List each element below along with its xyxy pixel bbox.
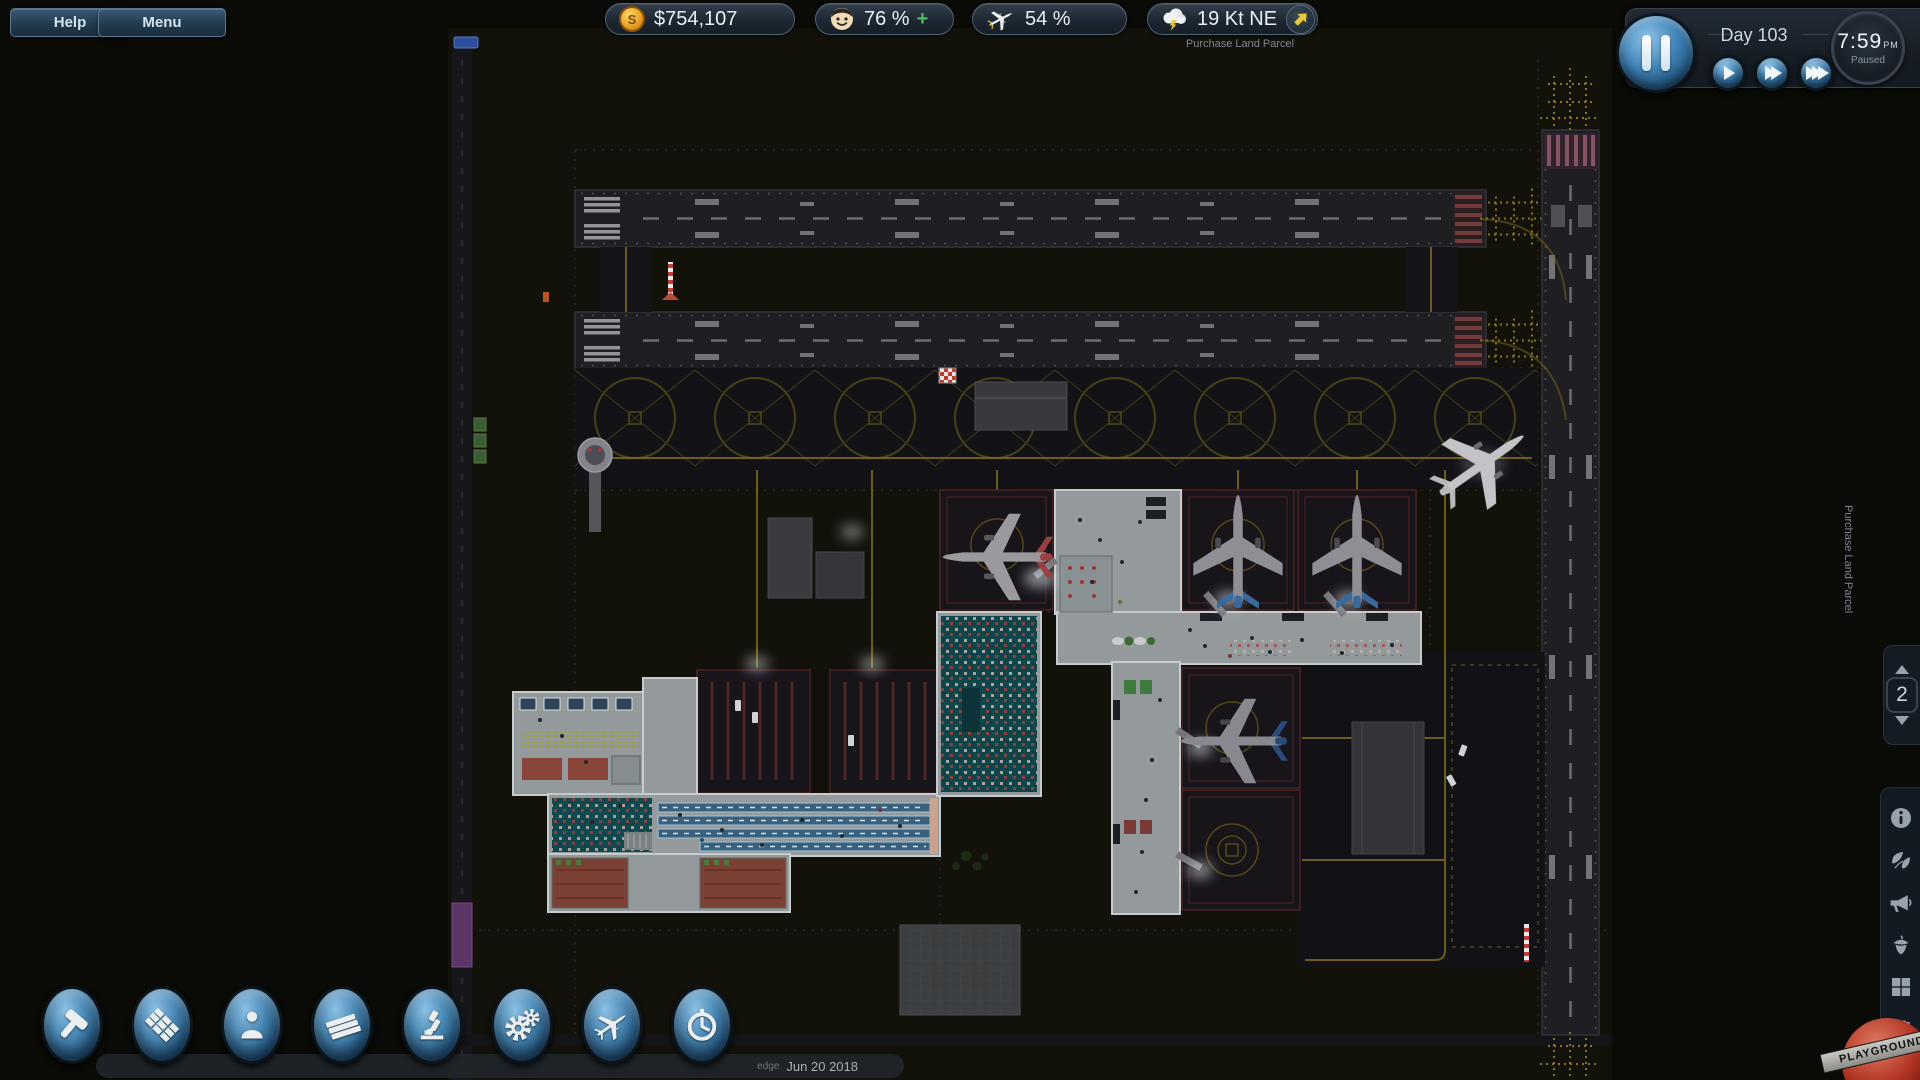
game-stage: Purchase Land Parcel Purchase Land Parce…	[0, 0, 1920, 1080]
pause-icon	[1642, 35, 1651, 71]
vehicle-depot	[452, 903, 472, 967]
play-icon	[1724, 66, 1735, 80]
service-building-b	[816, 552, 864, 598]
floor-selector: 2	[1883, 645, 1920, 745]
megaphone-icon[interactable]	[1888, 890, 1913, 915]
satisfaction-indicator[interactable]: 76 % +	[815, 3, 954, 35]
floor-up-button[interactable]	[1895, 665, 1909, 674]
land-parcel-label-top: Purchase Land Parcel	[1186, 38, 1294, 50]
airplane-icon	[592, 1005, 632, 1045]
tiles-icon	[143, 1006, 181, 1044]
floor-value: 2	[1886, 677, 1918, 713]
satisfaction-trend: +	[917, 8, 929, 31]
storm-cloud-icon	[1161, 7, 1188, 31]
fuel-tanks	[474, 418, 486, 463]
planks-icon	[323, 1006, 361, 1044]
menu-button[interactable]: Menu	[98, 8, 226, 37]
person-icon	[235, 1008, 269, 1042]
flight-rating-indicator[interactable]: 54 %	[972, 3, 1127, 35]
acorn-icon[interactable]	[1889, 933, 1913, 957]
service-building-a	[768, 518, 812, 598]
money-value: $754,107	[654, 8, 737, 31]
help-button-label: Help	[54, 14, 87, 31]
floor-down-button[interactable]	[1895, 716, 1909, 725]
version-label: edge	[757, 1061, 779, 1072]
clock-display: 7:59PM Paused	[1831, 11, 1905, 85]
version-bar: edge Jun 20 2018	[96, 1054, 904, 1078]
wind-indicator[interactable]: 19 Kt NE	[1147, 3, 1318, 35]
gears-icon	[503, 1006, 541, 1044]
zones-tool-button[interactable]	[131, 986, 193, 1064]
sim-status: Paused	[1834, 55, 1902, 66]
play-button[interactable]	[1710, 55, 1746, 91]
runway-2	[575, 312, 1486, 369]
runway-3	[1540, 68, 1600, 1080]
hammer-icon	[54, 1007, 90, 1043]
hangar-north	[975, 382, 1067, 430]
microscope-icon	[414, 1007, 450, 1043]
staff-tool-button[interactable]	[221, 986, 283, 1064]
info-icon[interactable]	[1889, 806, 1913, 830]
time-panel: Day 103 7:59PM Paused	[1625, 8, 1920, 88]
satisfaction-value: 76 %	[864, 8, 910, 31]
airport-map-canvas[interactable]: Purchase Land Parcel Purchase Land Parce…	[0, 0, 1920, 1080]
build-date: Jun 20 2018	[786, 1059, 858, 1074]
passenger-face-icon	[829, 6, 855, 32]
runway-1	[575, 190, 1486, 247]
schedule-tool-button[interactable]	[671, 986, 733, 1064]
grid-icon[interactable]	[1889, 975, 1913, 999]
flight-rating-value: 54 %	[1025, 8, 1071, 31]
research-tool-button[interactable]	[401, 986, 463, 1064]
sliders-icon[interactable]	[1889, 1017, 1913, 1041]
fast-forward-button[interactable]	[1754, 55, 1790, 91]
day-label: Day 103	[1699, 25, 1809, 46]
time-value: 7:59	[1837, 30, 1882, 53]
build-tool-button[interactable]	[41, 986, 103, 1064]
airplane-icon	[986, 4, 1016, 34]
stopwatch-icon	[684, 1007, 720, 1043]
materials-tool-button[interactable]	[311, 986, 373, 1064]
pause-button[interactable]	[1616, 13, 1696, 93]
menu-button-label: Menu	[142, 14, 181, 31]
money-indicator[interactable]: S $754,107	[605, 3, 795, 35]
meridiem: PM	[1883, 40, 1899, 50]
leaf-icon[interactable]	[1889, 848, 1913, 872]
land-parcel-label-right: Purchase Land Parcel	[1842, 505, 1854, 613]
road-sign	[454, 37, 478, 48]
wind-value: 19 Kt NE	[1197, 8, 1277, 31]
wind-direction-button[interactable]	[1286, 5, 1315, 34]
coin-icon: S	[619, 6, 645, 32]
northeast-arrow-icon	[1293, 11, 1309, 27]
fastest-forward-button[interactable]	[1798, 55, 1834, 91]
operations-tool-button[interactable]	[491, 986, 553, 1064]
flights-tool-button[interactable]	[581, 986, 643, 1064]
overlay-icon-rail	[1880, 787, 1920, 1060]
